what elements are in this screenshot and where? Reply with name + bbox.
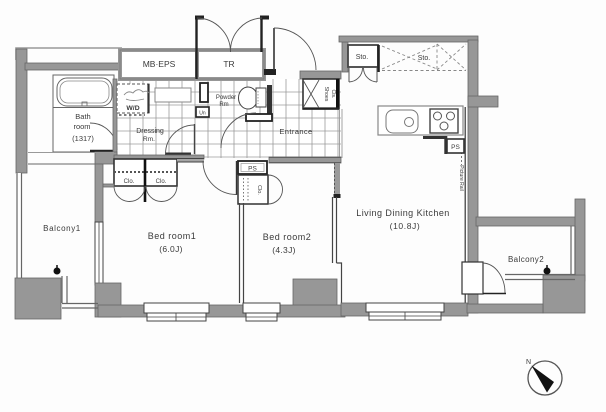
- svg-text:room: room: [73, 122, 90, 131]
- svg-text:Un: Un: [199, 111, 206, 117]
- svg-text:Powder: Powder: [216, 95, 236, 101]
- svg-text:(6.0J): (6.0J): [159, 244, 183, 254]
- svg-text:Bath: Bath: [75, 112, 90, 121]
- svg-text:(10.8J): (10.8J): [390, 221, 421, 231]
- svg-text:Rm.: Rm.: [143, 136, 155, 143]
- svg-text:Balcony2: Balcony2: [508, 255, 544, 264]
- svg-text:PS: PS: [451, 144, 460, 151]
- svg-text:N: N: [526, 359, 531, 366]
- svg-text:TR: TR: [223, 59, 234, 69]
- svg-text:Living Dining Kitchen: Living Dining Kitchen: [356, 208, 450, 218]
- svg-text:(4.3J): (4.3J): [272, 245, 296, 255]
- svg-text:Picture Rail: Picture Rail: [458, 165, 464, 191]
- svg-text:Entrance: Entrance: [279, 127, 312, 136]
- svg-text:Clo.: Clo.: [256, 185, 262, 195]
- svg-text:Shoes: Shoes: [323, 87, 329, 102]
- svg-text:MB·EPS: MB·EPS: [143, 59, 176, 69]
- svg-text:Rm: Rm: [219, 102, 228, 108]
- svg-text:Clo.: Clo.: [156, 179, 167, 185]
- svg-text:Sto.: Sto.: [356, 54, 369, 61]
- svg-text:Bed room2: Bed room2: [263, 232, 312, 242]
- svg-text:Balcony1: Balcony1: [43, 224, 81, 233]
- svg-text:Dressing: Dressing: [136, 128, 164, 135]
- svg-text:Cls.: Cls.: [330, 90, 336, 99]
- svg-text:PS: PS: [248, 166, 257, 173]
- svg-text:Bed room1: Bed room1: [148, 231, 197, 241]
- svg-text:Clo.: Clo.: [124, 179, 135, 185]
- svg-text:W/D: W/D: [126, 105, 139, 112]
- svg-text:(1317): (1317): [72, 134, 94, 143]
- svg-text:Sto.: Sto.: [418, 55, 431, 62]
